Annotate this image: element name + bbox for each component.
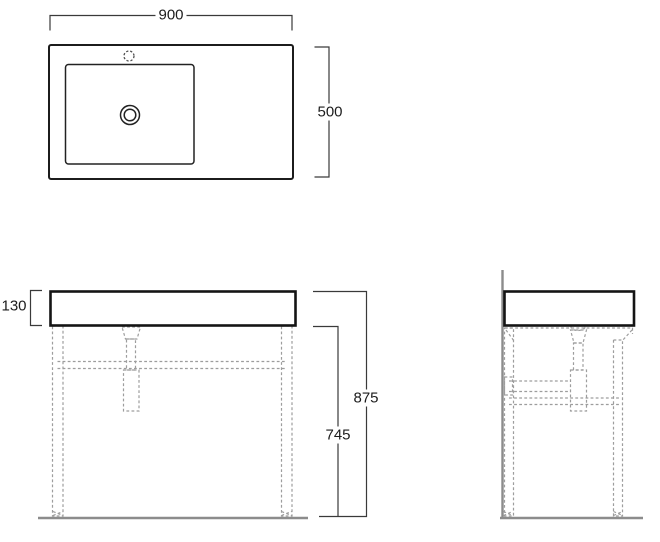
side-right-leg (614, 340, 623, 516)
front-view (38, 292, 308, 519)
drawing-linework (0, 0, 660, 542)
side-left-leg (505, 328, 514, 516)
front-right-foot (282, 512, 292, 516)
dim-label-total-height: 875 (350, 390, 381, 407)
side-drain-collar (571, 330, 587, 343)
dim-line-stand-height-745 (313, 327, 338, 517)
side-basin-outline (505, 292, 635, 326)
dim-label-depth: 500 (314, 104, 345, 121)
front-right-leg (282, 326, 293, 516)
side-frame-diagonals (506, 328, 633, 341)
side-right-foot (614, 512, 623, 516)
front-drain-collar (122, 327, 141, 339)
front-left-foot (53, 512, 63, 516)
dim-label-basin-height: 130 (0, 298, 27, 315)
front-left-leg (53, 326, 64, 516)
dim-label-width: 900 (155, 7, 186, 24)
front-drain-pipe (127, 339, 136, 370)
side-wall-flange (505, 377, 513, 395)
technical-drawing-canvas: 900 500 130 875 745 (0, 0, 660, 542)
side-drain-pipe (574, 343, 584, 370)
dim-label-stand-height: 745 (322, 427, 353, 444)
dim-line-basin-height-130 (31, 291, 43, 326)
side-left-foot (504, 512, 513, 516)
front-trap-body (124, 370, 140, 411)
side-view (500, 270, 643, 519)
front-basin-outline (51, 292, 296, 326)
top-view (49, 45, 293, 179)
